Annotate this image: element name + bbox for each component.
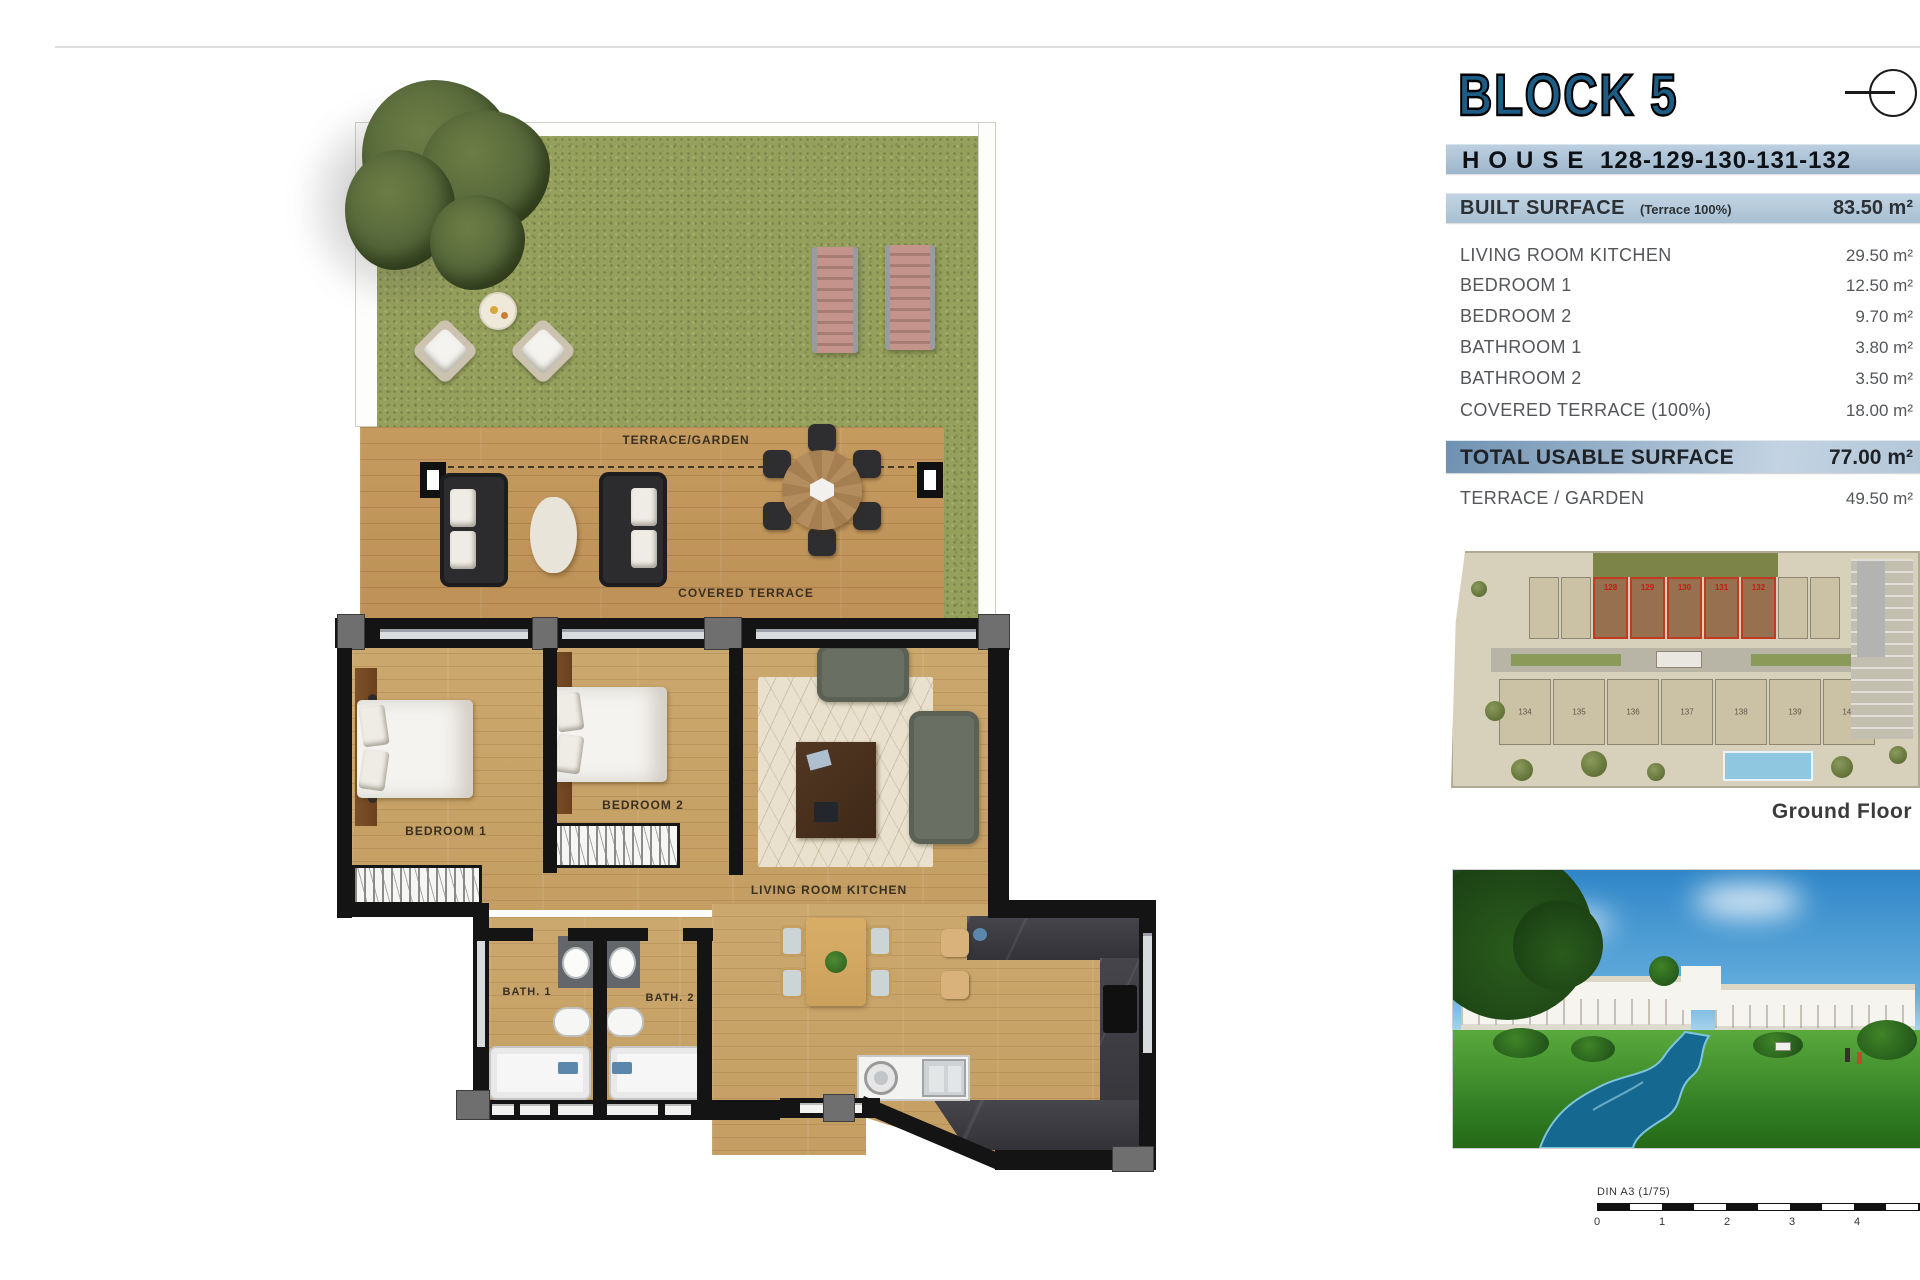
- garden-path-frame-right: [978, 122, 996, 618]
- toilet-icon: [553, 1007, 591, 1037]
- column-core: [427, 470, 439, 490]
- terrace-round-table: [782, 450, 862, 530]
- siteplan-median: [1511, 654, 1621, 666]
- scale-bar-label: DIN A3 (1/75): [1597, 1186, 1670, 1198]
- golf-cart: [1775, 1042, 1791, 1051]
- siteplan-unit: [1561, 577, 1591, 639]
- surface-row-value: 12.50 m²: [1790, 276, 1913, 296]
- window: [492, 1104, 514, 1115]
- siteplan-unit: 137: [1661, 679, 1713, 745]
- cushion: [450, 531, 476, 569]
- siteplan-unit: [1529, 577, 1559, 639]
- sofa: [909, 711, 979, 844]
- surface-row-value: 18.00 m²: [1790, 401, 1913, 421]
- shower-fixture-icon: [558, 1062, 578, 1074]
- bed1: [357, 700, 473, 798]
- siteplan-unit-highlighted: 132: [1741, 577, 1776, 639]
- terrace-garden-row-label: TERRACE / GARDEN: [1460, 488, 1644, 509]
- bed2: [552, 687, 667, 782]
- pillow: [553, 733, 584, 774]
- wall-pillar: [532, 617, 558, 650]
- garden-side-table: [479, 292, 517, 330]
- window: [558, 1104, 658, 1115]
- surface-row-label: BATHROOM 2: [1460, 368, 1582, 389]
- siteplan-unit: 139: [1769, 679, 1821, 745]
- washing-machine-icon: [864, 1061, 898, 1095]
- scale-tick: 4: [1851, 1216, 1863, 1228]
- unit-number: 129: [1632, 583, 1663, 592]
- terrace-dining-chair: [808, 528, 836, 556]
- terrace-loveseat: [599, 472, 667, 587]
- golfer-figure: [1845, 1048, 1850, 1062]
- siteplan-tree-icon: [1485, 701, 1505, 721]
- siteplan-tree-icon: [1831, 756, 1853, 778]
- label-terrace-garden: TERRACE/GARDEN: [622, 433, 749, 447]
- label-bedroom2: BEDROOM 2: [602, 798, 684, 812]
- kitchen-faucet-icon: [973, 928, 987, 941]
- chair-cushion: [421, 327, 469, 375]
- pillow: [358, 748, 389, 791]
- chair-cushion: [519, 327, 567, 375]
- scale-tick: 1: [1656, 1216, 1668, 1228]
- development-photo: [1453, 870, 1920, 1148]
- terrace-garden-row-value: 49.50 m²: [1790, 489, 1913, 509]
- window: [756, 629, 976, 639]
- total-value: 77.00 m²: [1770, 446, 1913, 470]
- wall-bed1-bed2: [543, 648, 557, 873]
- wall-pillar: [337, 614, 365, 650]
- surface-row-label: BATHROOM 1: [1460, 337, 1582, 358]
- table-decor: [814, 802, 838, 822]
- cooktop-icon: [1103, 985, 1137, 1033]
- wall-bath-top: [568, 928, 648, 941]
- scale-tick: 0: [1591, 1216, 1603, 1228]
- table-decor: [806, 749, 831, 770]
- block-title: BLOCK 5: [1458, 62, 1678, 129]
- dining-chair: [780, 925, 804, 957]
- bar-stool: [941, 929, 969, 957]
- surface-row-label: BEDROOM 1: [1460, 275, 1572, 296]
- compass-needle: [1845, 91, 1895, 94]
- siteplan-pool: [1723, 751, 1813, 781]
- kitchen-peninsula: [967, 916, 1139, 960]
- label-living-room-kitchen: LIVING ROOM KITCHEN: [751, 883, 907, 897]
- unit-number: 132: [1743, 583, 1774, 592]
- bar-stool: [941, 971, 969, 999]
- siteplan-unit-highlighted: 130: [1667, 577, 1702, 639]
- surface-row-label: COVERED TERRACE (100%): [1460, 400, 1712, 421]
- terrace-column: [917, 462, 943, 498]
- wall-bath-top: [473, 928, 533, 941]
- bath2-sink-icon: [609, 947, 636, 979]
- window: [520, 1104, 550, 1115]
- siteplan-garden-strip: [1593, 553, 1778, 577]
- built-surface-note: (Terrace 100%): [1640, 202, 1732, 217]
- wall-bath-divider: [593, 928, 607, 1120]
- dining-chair: [868, 967, 892, 999]
- wall-kitchen-top-right: [988, 900, 1156, 918]
- siteplan-unit: 138: [1715, 679, 1767, 745]
- siteplan-unit-highlighted: 131: [1704, 577, 1739, 639]
- cushion: [631, 530, 657, 568]
- dining-table: [806, 918, 866, 1006]
- surface-row-value: 9.70 m²: [1790, 307, 1913, 327]
- siteplan-tree-icon: [1581, 751, 1607, 777]
- tray-item: [490, 306, 498, 314]
- scale-tick: 2: [1721, 1216, 1733, 1228]
- plant-centerpiece: [825, 951, 847, 973]
- window: [1143, 933, 1152, 1053]
- armchair: [817, 644, 909, 702]
- unit-number: 138: [1716, 708, 1766, 717]
- sun-lounger: [885, 245, 935, 350]
- label-bath2: BATH. 2: [646, 992, 695, 1004]
- sink-bowl: [929, 1066, 944, 1092]
- total-label: TOTAL USABLE SURFACE: [1460, 446, 1734, 470]
- toilet-icon: [606, 1007, 644, 1037]
- kitchen-sink-icon: [922, 1059, 966, 1097]
- unit-number: 136: [1608, 708, 1658, 717]
- unit-number: 137: [1662, 708, 1712, 717]
- bed2-wardrobe: [548, 823, 680, 868]
- built-surface-label: BUILT SURFACE: [1460, 197, 1625, 220]
- unit-number: 130: [1669, 583, 1700, 592]
- siteplan-tree-icon: [1471, 581, 1487, 597]
- pillow: [358, 704, 389, 747]
- siteplan-median: [1751, 654, 1861, 666]
- column-core: [924, 470, 936, 490]
- wall-bath2-right: [697, 928, 712, 1120]
- surface-row-label: LIVING ROOM KITCHEN: [1460, 245, 1672, 266]
- wall-pillar: [456, 1090, 490, 1120]
- surface-row-label: BEDROOM 2: [1460, 306, 1572, 327]
- golfer-figure: [1857, 1052, 1862, 1064]
- sun-lounger: [812, 247, 858, 353]
- foreground-tree: [1513, 900, 1603, 990]
- siteplan-unit: 136: [1607, 679, 1659, 745]
- surface-row-value: 29.50 m²: [1790, 246, 1913, 266]
- unit-number: 131: [1706, 583, 1737, 592]
- siteplan-building: [1857, 561, 1885, 657]
- siteplan-unit: 135: [1553, 679, 1605, 745]
- window: [380, 629, 528, 639]
- label-bath1: BATH. 1: [503, 986, 552, 998]
- unit-number: 134: [1500, 708, 1550, 717]
- terrace-coffee-table: [530, 497, 577, 573]
- siteplan-unit: [1810, 577, 1840, 639]
- wall-living-right: [988, 648, 1009, 910]
- siteplan-tree-icon: [1647, 763, 1665, 781]
- wall-pillar: [823, 1094, 855, 1122]
- cushion: [450, 489, 476, 527]
- pillow: [553, 691, 584, 732]
- window: [562, 629, 720, 639]
- terrace-dining-chair: [808, 424, 836, 452]
- surface-row-value: 3.80 m²: [1790, 338, 1913, 358]
- ground-floor-caption: Ground Floor: [1690, 800, 1912, 824]
- wall-bed2-living: [729, 648, 743, 875]
- siteplan-tree-icon: [1511, 759, 1533, 781]
- unit-number: 139: [1770, 708, 1820, 717]
- built-surface-value: 83.50 m²: [1770, 197, 1913, 220]
- siteplan-tree-icon: [1889, 746, 1907, 764]
- wall-pillar: [704, 617, 742, 650]
- unit-number: 128: [1595, 583, 1626, 592]
- siteplan-unit: 134: [1499, 679, 1551, 745]
- scale-bar: [1597, 1203, 1920, 1211]
- tray-item: [501, 312, 508, 319]
- shower-fixture-icon: [612, 1062, 632, 1074]
- surface-row-value: 3.50 m²: [1790, 369, 1913, 389]
- wall-left: [337, 648, 352, 918]
- label-bedroom1: BEDROOM 1: [405, 824, 487, 838]
- coffee-table: [796, 742, 876, 838]
- window: [665, 1104, 691, 1115]
- bed1-wardrobe: [352, 865, 482, 905]
- table-centerpiece: [810, 478, 834, 502]
- floorplan-sheet: TERRACE/GARDEN COVERED TERRACE BEDROOM 1…: [0, 0, 1920, 1280]
- siteplan-vehicle: [1656, 651, 1702, 668]
- cushion: [631, 488, 657, 526]
- wall-pillar: [1112, 1146, 1154, 1172]
- washer-door: [874, 1071, 888, 1085]
- sink-bowl: [948, 1066, 961, 1092]
- house-numbers: 128-129-130-131-132: [1600, 147, 1851, 175]
- window: [477, 935, 485, 1047]
- wall-pillar: [978, 614, 1010, 650]
- site-plan: 128 129 130 131 132 134 135 136 137 138 …: [1451, 551, 1920, 788]
- dining-chair: [780, 967, 804, 999]
- scale-tick: 3: [1786, 1216, 1798, 1228]
- siteplan-unit-highlighted: 128: [1593, 577, 1628, 639]
- wall-bed1-bottom: [337, 903, 489, 917]
- siteplan-unit: [1778, 577, 1808, 639]
- garden-grass-side-strip: [944, 427, 978, 618]
- house-label: HOUSE: [1462, 147, 1592, 175]
- terrace-loveseat: [440, 473, 508, 587]
- dining-chair: [868, 925, 892, 957]
- sheet-top-rule: [55, 46, 1920, 48]
- unit-number: 135: [1554, 708, 1604, 717]
- label-covered-terrace: COVERED TERRACE: [678, 586, 814, 600]
- bath1-sink-icon: [562, 947, 590, 979]
- siteplan-unit-highlighted: 129: [1630, 577, 1665, 639]
